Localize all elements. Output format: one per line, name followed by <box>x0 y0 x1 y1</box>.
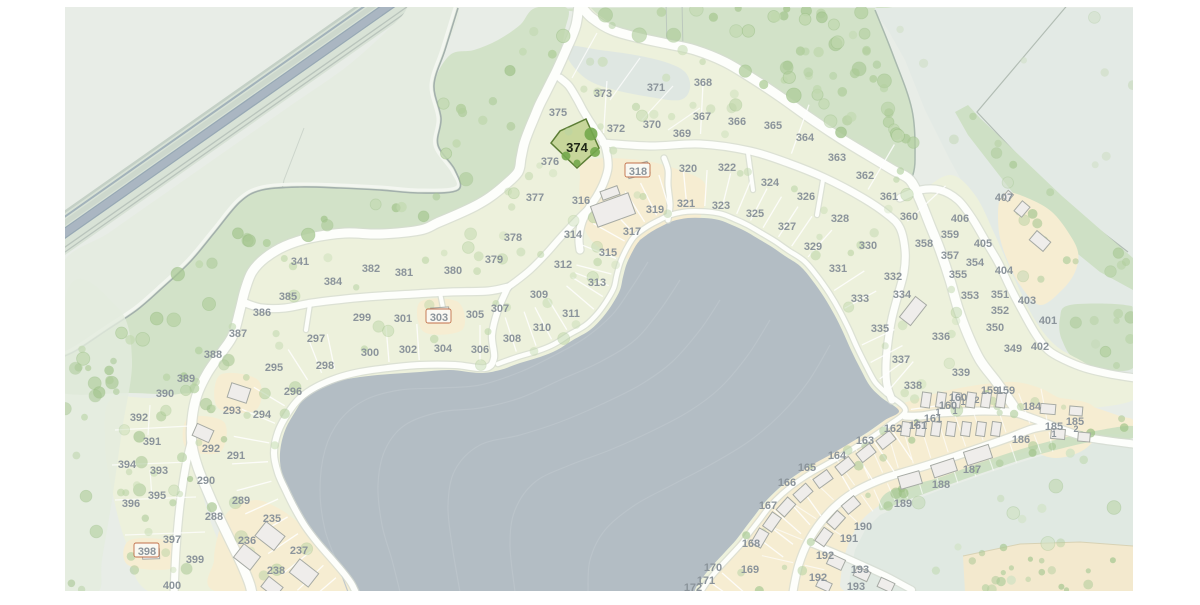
svg-text:238: 238 <box>267 565 285 577</box>
svg-text:384: 384 <box>324 276 343 288</box>
svg-text:365: 365 <box>764 120 782 132</box>
svg-text:335: 335 <box>871 323 889 335</box>
svg-text:305: 305 <box>466 309 484 321</box>
svg-text:289: 289 <box>232 495 250 507</box>
svg-text:299: 299 <box>353 312 371 324</box>
svg-text:368: 368 <box>694 77 712 89</box>
svg-text:167: 167 <box>759 500 777 512</box>
svg-text:320: 320 <box>679 163 697 175</box>
svg-text:297: 297 <box>307 333 325 345</box>
svg-text:336: 336 <box>932 331 950 343</box>
svg-text:165: 165 <box>798 462 816 474</box>
svg-text:322: 322 <box>718 162 736 174</box>
svg-text:361: 361 <box>880 191 898 203</box>
svg-text:189: 189 <box>894 498 912 510</box>
svg-text:325: 325 <box>746 208 764 220</box>
svg-text:400: 400 <box>163 580 181 592</box>
svg-text:192: 192 <box>816 550 834 562</box>
svg-text:304: 304 <box>434 343 453 355</box>
svg-text:296: 296 <box>284 386 302 398</box>
svg-text:379: 379 <box>485 254 503 266</box>
svg-text:328: 328 <box>831 213 849 225</box>
svg-text:306: 306 <box>471 344 489 356</box>
svg-text:366: 366 <box>728 116 746 128</box>
svg-text:391: 391 <box>143 436 161 448</box>
svg-text:2: 2 <box>974 395 979 405</box>
svg-text:292: 292 <box>202 443 220 455</box>
svg-text:373: 373 <box>594 88 612 100</box>
svg-text:374: 374 <box>566 140 588 155</box>
svg-text:358: 358 <box>915 238 933 250</box>
svg-text:1: 1 <box>935 407 940 417</box>
svg-text:192: 192 <box>809 572 827 584</box>
svg-text:387: 387 <box>229 328 247 340</box>
svg-text:363: 363 <box>828 152 846 164</box>
svg-text:405: 405 <box>974 238 992 250</box>
svg-text:163: 163 <box>856 435 874 447</box>
svg-text:402: 402 <box>1031 341 1049 353</box>
svg-text:318: 318 <box>629 166 647 178</box>
svg-text:393: 393 <box>150 465 168 477</box>
svg-text:321: 321 <box>677 198 695 210</box>
svg-text:354: 354 <box>966 257 985 269</box>
svg-text:312: 312 <box>554 259 572 271</box>
svg-text:362: 362 <box>856 170 874 182</box>
svg-text:237: 237 <box>290 545 308 557</box>
svg-text:369: 369 <box>673 128 691 140</box>
svg-text:370: 370 <box>643 119 661 131</box>
svg-text:341: 341 <box>291 256 309 268</box>
svg-text:351: 351 <box>991 289 1009 301</box>
svg-text:235: 235 <box>263 513 281 525</box>
svg-text:396: 396 <box>122 498 140 510</box>
svg-text:378: 378 <box>504 232 522 244</box>
svg-text:367: 367 <box>693 111 711 123</box>
svg-text:315: 315 <box>599 247 617 259</box>
svg-text:380: 380 <box>444 265 462 277</box>
svg-text:170: 170 <box>704 562 722 574</box>
svg-text:191: 191 <box>840 533 858 545</box>
svg-text:375: 375 <box>549 107 567 119</box>
svg-text:291: 291 <box>227 450 245 462</box>
svg-text:355: 355 <box>949 269 967 281</box>
svg-text:357: 357 <box>941 250 959 262</box>
svg-text:401: 401 <box>1039 315 1057 327</box>
svg-text:331: 331 <box>829 263 847 275</box>
svg-text:334: 334 <box>893 289 912 301</box>
svg-text:330: 330 <box>859 240 877 252</box>
svg-text:309: 309 <box>530 289 548 301</box>
svg-text:2: 2 <box>1073 424 1078 434</box>
svg-text:236: 236 <box>238 535 256 547</box>
svg-text:327: 327 <box>778 221 796 233</box>
svg-text:311: 311 <box>562 308 580 320</box>
svg-text:193: 193 <box>851 564 869 576</box>
svg-text:317: 317 <box>623 226 641 238</box>
svg-text:329: 329 <box>804 241 822 253</box>
svg-text:394: 394 <box>118 459 137 471</box>
svg-text:364: 364 <box>796 132 815 144</box>
svg-text:385: 385 <box>279 291 297 303</box>
svg-text:376: 376 <box>541 156 559 168</box>
svg-text:337: 337 <box>892 354 910 366</box>
svg-text:294: 294 <box>253 409 272 421</box>
svg-text:392: 392 <box>130 412 148 424</box>
svg-text:350: 350 <box>986 322 1004 334</box>
svg-text:2: 2 <box>913 418 918 428</box>
svg-text:190: 190 <box>854 521 872 533</box>
svg-text:352: 352 <box>991 305 1009 317</box>
svg-text:316: 316 <box>572 195 590 207</box>
svg-text:324: 324 <box>761 177 780 189</box>
svg-text:164: 164 <box>828 450 847 462</box>
svg-text:397: 397 <box>163 534 181 546</box>
svg-text:188: 188 <box>932 479 950 491</box>
svg-text:404: 404 <box>995 265 1014 277</box>
svg-text:168: 168 <box>742 538 760 550</box>
svg-text:295: 295 <box>265 362 283 374</box>
svg-text:390: 390 <box>156 388 174 400</box>
svg-text:398: 398 <box>138 546 156 558</box>
svg-text:323: 323 <box>712 200 730 212</box>
svg-text:300: 300 <box>361 347 379 359</box>
svg-text:302: 302 <box>399 344 417 356</box>
svg-text:406: 406 <box>951 213 969 225</box>
svg-text:159: 159 <box>997 385 1015 397</box>
svg-text:403: 403 <box>1018 295 1036 307</box>
svg-text:184: 184 <box>1023 401 1042 413</box>
svg-text:407: 407 <box>995 192 1013 204</box>
svg-text:288: 288 <box>205 511 223 523</box>
svg-text:293: 293 <box>223 405 241 417</box>
svg-text:314: 314 <box>564 229 583 241</box>
svg-text:382: 382 <box>362 263 380 275</box>
svg-text:388: 388 <box>204 349 222 361</box>
svg-text:371: 371 <box>647 82 665 94</box>
svg-text:359: 359 <box>941 229 959 241</box>
svg-text:372: 372 <box>607 123 625 135</box>
svg-text:326: 326 <box>797 191 815 203</box>
svg-text:1: 1 <box>952 406 957 416</box>
svg-text:298: 298 <box>316 360 334 372</box>
svg-text:308: 308 <box>503 333 521 345</box>
svg-text:377: 377 <box>526 192 544 204</box>
svg-text:166: 166 <box>778 477 796 489</box>
svg-text:349: 349 <box>1004 343 1022 355</box>
svg-text:332: 332 <box>884 271 902 283</box>
svg-text:395: 395 <box>148 490 166 502</box>
svg-text:389: 389 <box>177 373 195 385</box>
svg-text:353: 353 <box>961 290 979 302</box>
svg-text:381: 381 <box>395 267 413 279</box>
svg-text:169: 169 <box>741 564 759 576</box>
svg-text:386: 386 <box>253 307 271 319</box>
svg-text:310: 310 <box>533 322 551 334</box>
svg-text:303: 303 <box>430 312 448 324</box>
svg-text:399: 399 <box>186 554 204 566</box>
svg-text:319: 319 <box>646 204 664 216</box>
svg-text:338: 338 <box>904 380 922 392</box>
svg-text:162: 162 <box>884 423 902 435</box>
svg-text:290: 290 <box>197 475 215 487</box>
svg-text:301: 301 <box>394 313 412 325</box>
svg-text:1: 1 <box>1051 429 1056 439</box>
svg-text:307: 307 <box>491 303 509 315</box>
svg-text:1: 1 <box>960 397 965 407</box>
svg-text:360: 360 <box>900 211 918 223</box>
svg-text:186: 186 <box>1012 434 1030 446</box>
svg-text:333: 333 <box>851 293 869 305</box>
svg-text:339: 339 <box>952 367 970 379</box>
svg-text:313: 313 <box>588 277 606 289</box>
svg-text:187: 187 <box>963 464 981 476</box>
